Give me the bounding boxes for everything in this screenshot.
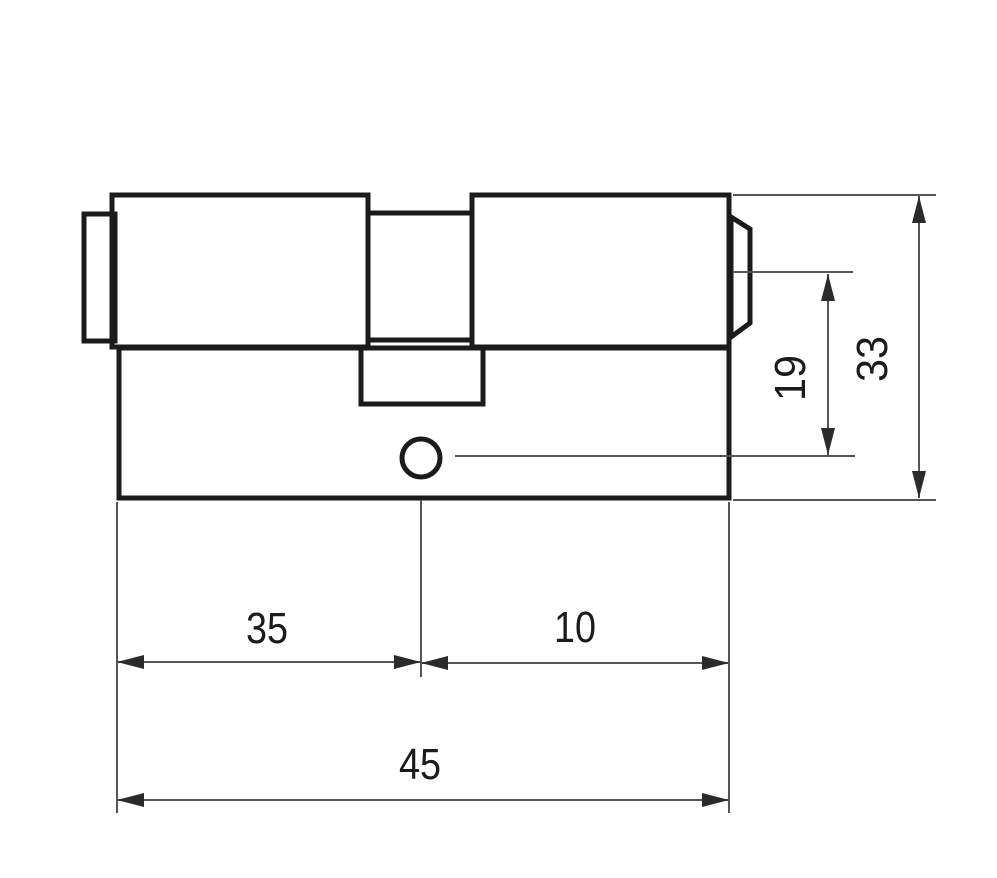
label-overall-length: 45: [399, 740, 441, 789]
dimension-labels: 35 10 45 19 33: [246, 336, 897, 789]
label-right-section-length: 10: [554, 603, 596, 652]
cylinder-dimension-drawing: 35 10 45 19 33: [0, 0, 997, 878]
cam-outline: [361, 349, 483, 404]
part-outline: [84, 195, 750, 498]
label-overall-height: 33: [848, 336, 897, 382]
dimension-lines: [117, 195, 936, 813]
label-cam-to-hole-height: 19: [766, 355, 815, 401]
left-barrel-block: [112, 195, 368, 347]
drawing-canvas: 35 10 45 19 33: [0, 0, 997, 878]
right-barrel-block: [472, 195, 729, 347]
fixing-screw-hole: [402, 439, 440, 477]
right-end-tab: [731, 217, 750, 337]
label-left-section-length: 35: [246, 604, 288, 653]
